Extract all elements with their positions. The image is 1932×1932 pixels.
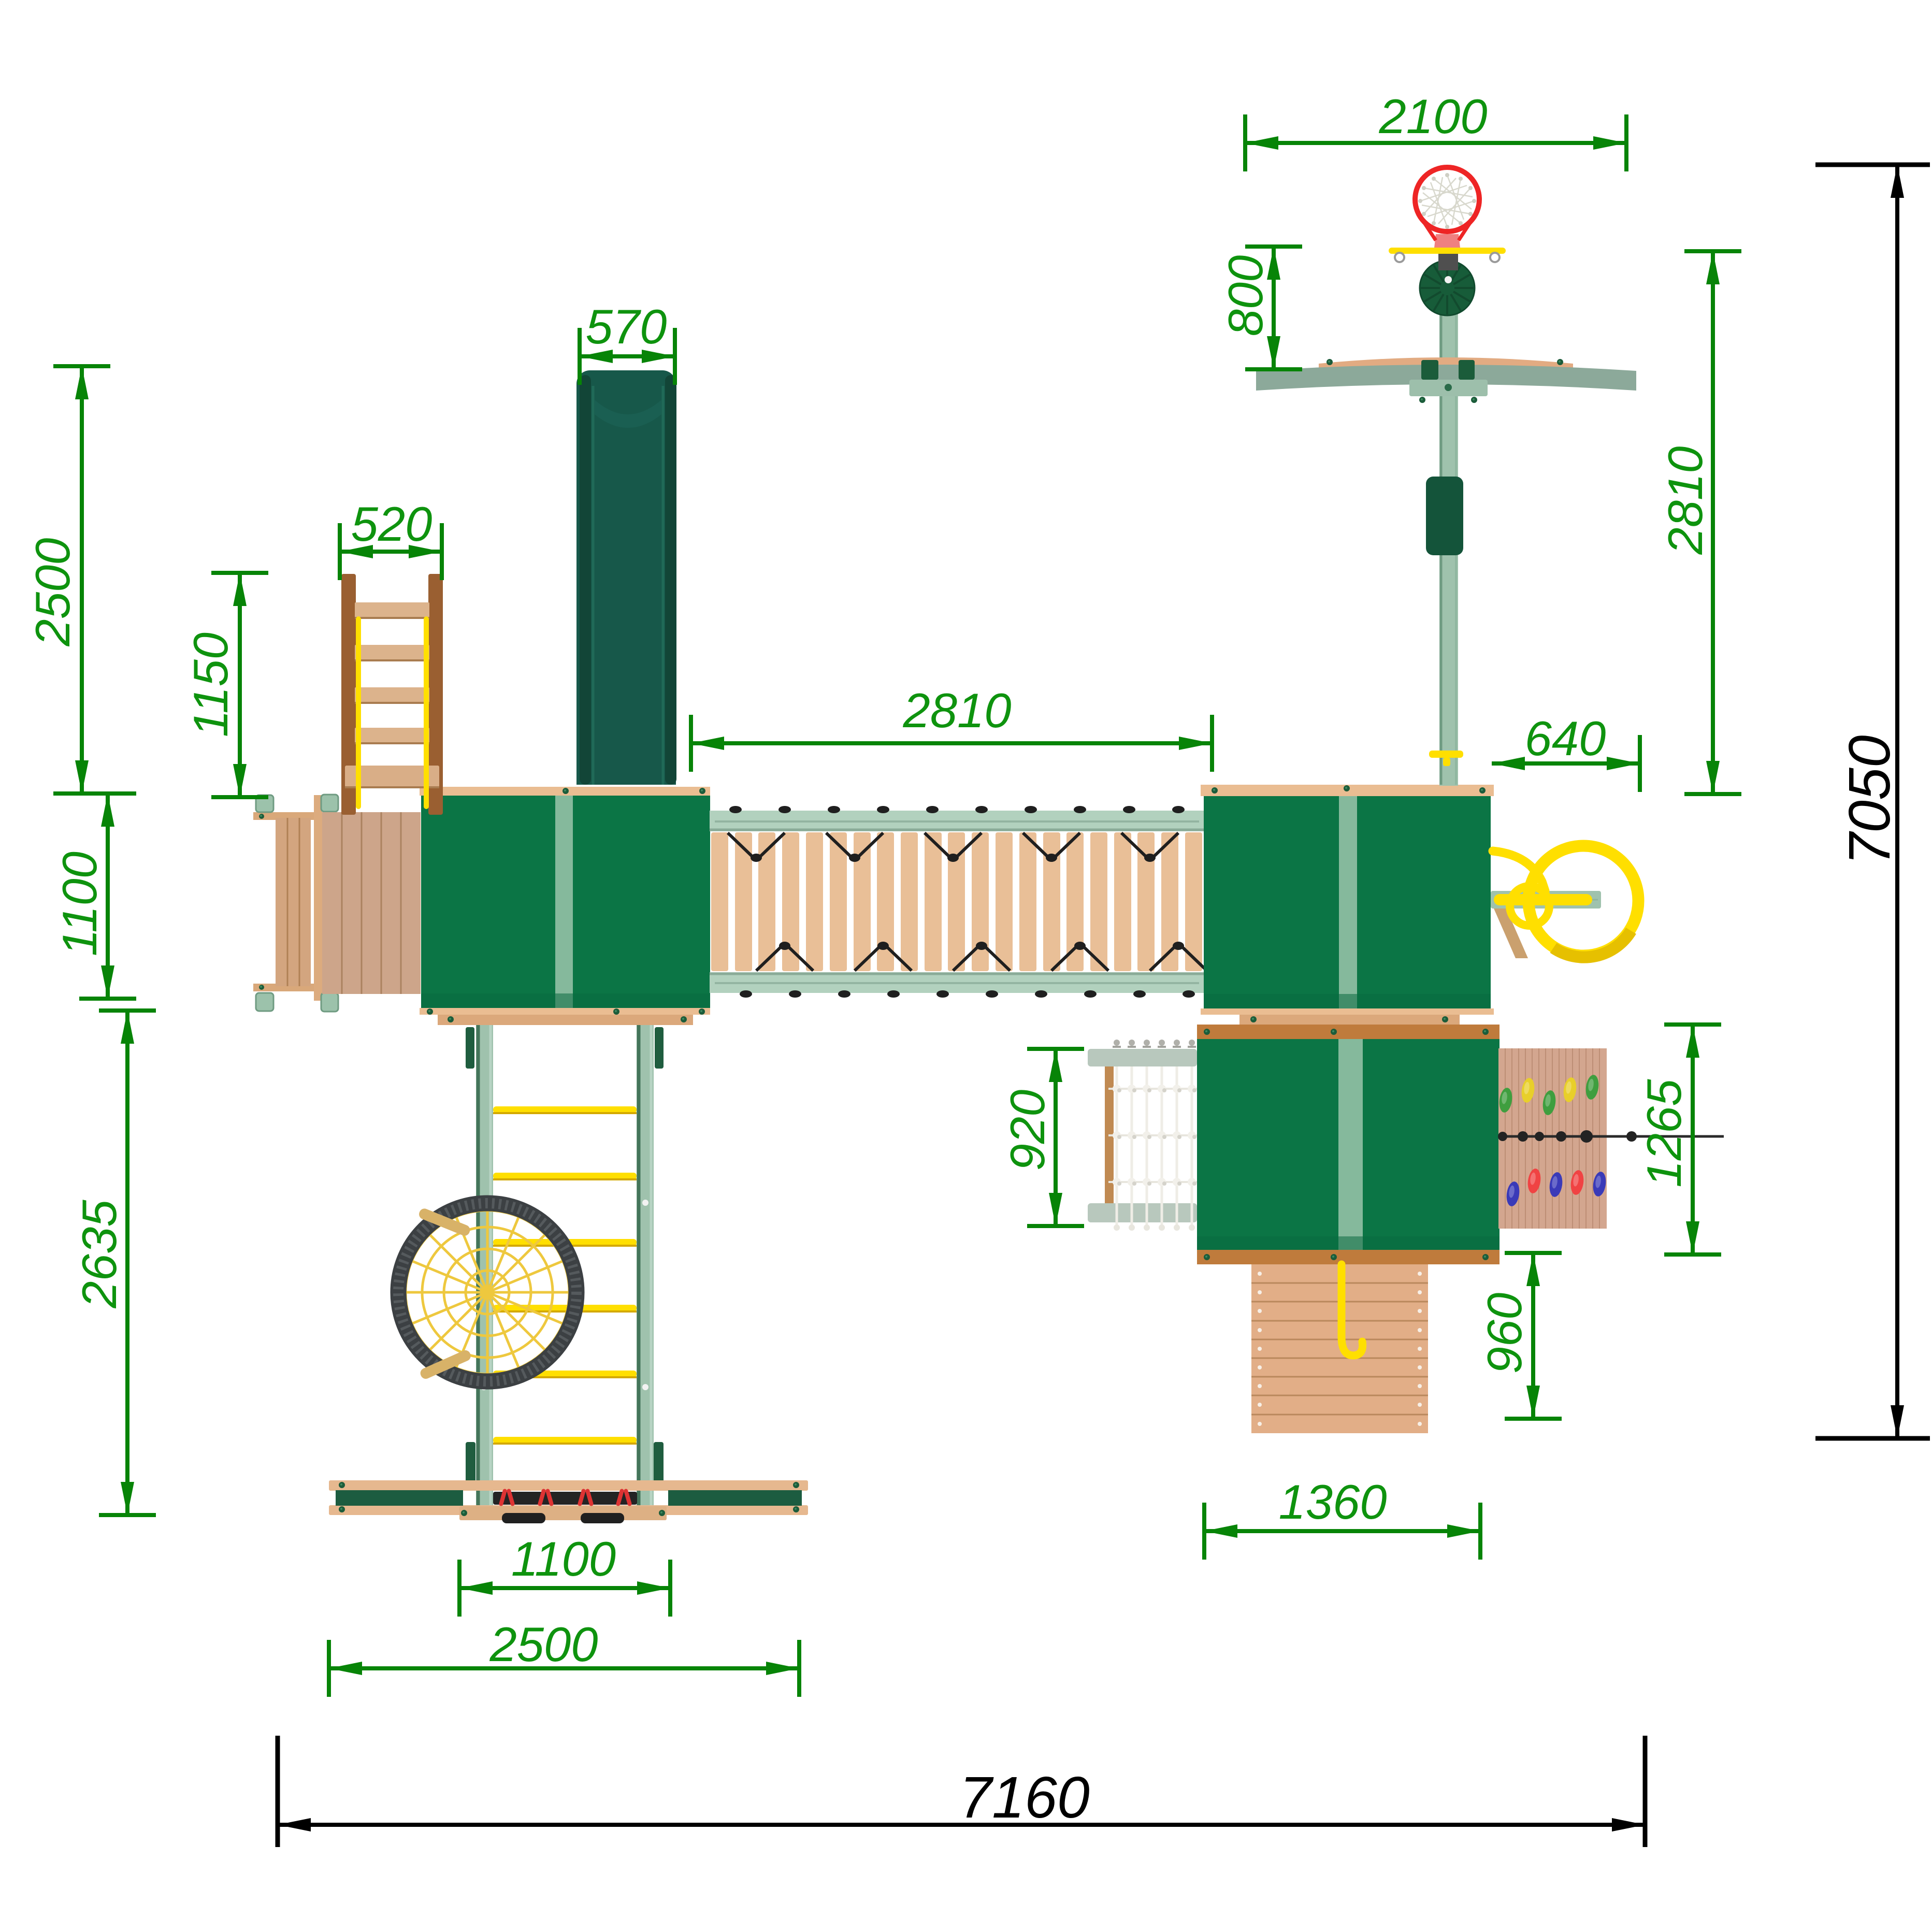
svg-text:640: 640 — [1525, 711, 1606, 766]
svg-text:570: 570 — [586, 299, 667, 354]
svg-text:2635: 2635 — [72, 1200, 126, 1309]
svg-text:2810: 2810 — [1658, 446, 1712, 555]
svg-text:920: 920 — [1000, 1090, 1055, 1171]
svg-text:7160: 7160 — [959, 1765, 1089, 1830]
svg-text:800: 800 — [1218, 255, 1273, 337]
svg-text:2100: 2100 — [1378, 89, 1487, 143]
svg-text:1100: 1100 — [52, 852, 107, 956]
svg-text:520: 520 — [351, 497, 432, 551]
svg-text:960: 960 — [1477, 1293, 1532, 1374]
svg-text:1360: 1360 — [1278, 1475, 1387, 1529]
svg-text:2500: 2500 — [25, 538, 80, 646]
svg-text:1265: 1265 — [1637, 1079, 1691, 1188]
svg-text:1150: 1150 — [183, 632, 238, 737]
svg-text:1100: 1100 — [511, 1532, 616, 1586]
svg-text:2500: 2500 — [489, 1617, 598, 1671]
svg-text:7050: 7050 — [1837, 735, 1902, 865]
svg-text:2810: 2810 — [902, 683, 1011, 738]
